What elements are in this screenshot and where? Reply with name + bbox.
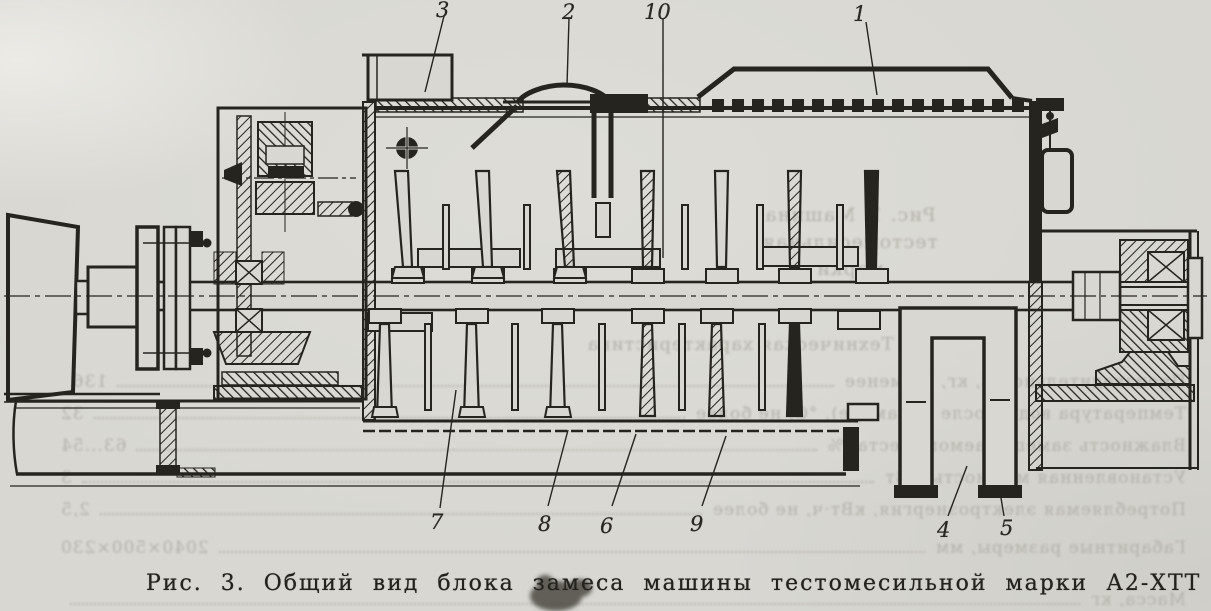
ground-hatch-strips bbox=[214, 372, 1194, 401]
callout-number-5: 5 bbox=[1000, 516, 1013, 540]
callout-number-9: 9 bbox=[690, 512, 703, 536]
scanned-book-page: { "page": { "paper_color": "#d8d7d2", "i… bbox=[0, 0, 1211, 611]
part3-box bbox=[362, 55, 452, 100]
callout-number-1: 1 bbox=[853, 2, 866, 26]
crosshair-fitting bbox=[386, 127, 428, 169]
support-legs bbox=[894, 308, 1022, 498]
feed-tube bbox=[590, 94, 648, 237]
callout-number-8: 8 bbox=[538, 512, 551, 536]
callout-number-10: 10 bbox=[644, 0, 671, 24]
callout-number-4: 4 bbox=[937, 518, 950, 542]
right-bearing-assembly bbox=[1073, 240, 1202, 384]
gearbox bbox=[214, 108, 366, 399]
callout-number-2: 2 bbox=[562, 0, 575, 24]
callout-number-7: 7 bbox=[430, 510, 443, 534]
base-platform bbox=[10, 400, 860, 486]
callout-number-6: 6 bbox=[600, 514, 613, 538]
part1-lid bbox=[698, 69, 1032, 101]
lower-blades bbox=[369, 309, 811, 417]
callout-number-3: 3 bbox=[436, 0, 449, 22]
lid-gasket-dashes bbox=[712, 99, 1024, 112]
figure-caption: Рис. 3. Общий вид блока замеса машины те… bbox=[146, 571, 1206, 596]
